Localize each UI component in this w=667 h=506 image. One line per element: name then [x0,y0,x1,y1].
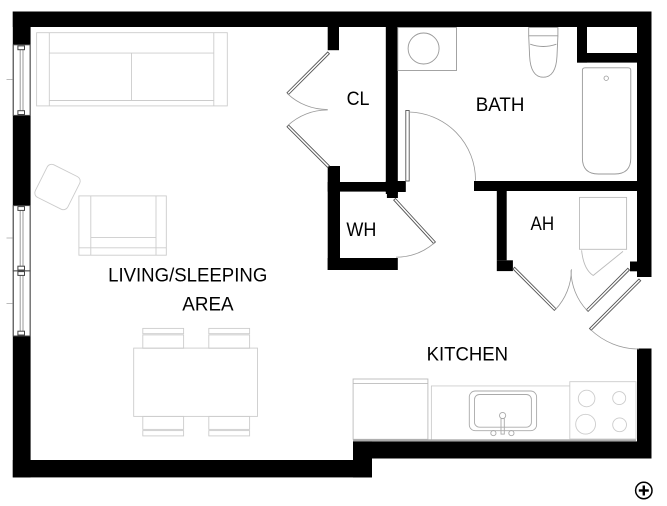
svg-text:KITCHEN: KITCHEN [427,343,508,365]
svg-text:BATH: BATH [476,94,525,116]
svg-text:AH: AH [531,213,555,235]
svg-text:CL: CL [347,88,370,110]
svg-text:WH: WH [346,219,376,241]
svg-text:LIVING/SLEEPING: LIVING/SLEEPING [108,265,267,287]
svg-text:AREA: AREA [182,294,234,316]
